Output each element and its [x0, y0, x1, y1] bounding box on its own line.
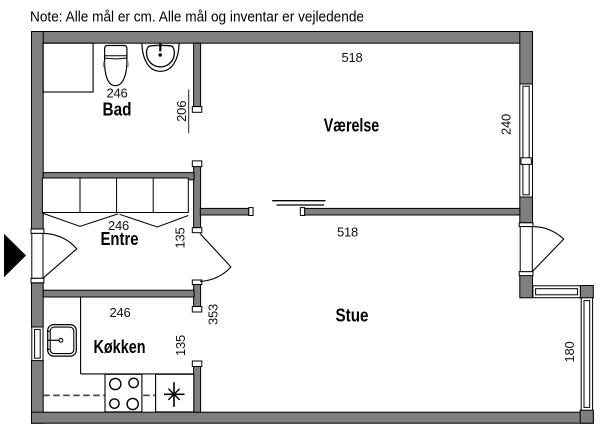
svg-text:Stue: Stue — [336, 306, 369, 326]
svg-text:240: 240 — [498, 114, 513, 135]
svg-text:180: 180 — [562, 341, 577, 362]
svg-text:353: 353 — [205, 304, 220, 325]
svg-text:518: 518 — [337, 225, 358, 240]
svg-text:135: 135 — [172, 227, 187, 248]
svg-text:518: 518 — [341, 50, 362, 65]
svg-text:Entre: Entre — [101, 229, 139, 249]
svg-text:135: 135 — [173, 335, 188, 356]
svg-text:206: 206 — [174, 101, 189, 122]
svg-text:246: 246 — [106, 86, 127, 101]
svg-text:Køkken: Køkken — [94, 337, 146, 357]
svg-text:Bad: Bad — [103, 100, 132, 120]
svg-text:246: 246 — [109, 305, 130, 320]
svg-text:Værelse: Værelse — [324, 116, 380, 136]
svg-text:Note: Alle mål er cm. Alle mål: Note: Alle mål er cm. Alle mål og invent… — [30, 10, 364, 26]
